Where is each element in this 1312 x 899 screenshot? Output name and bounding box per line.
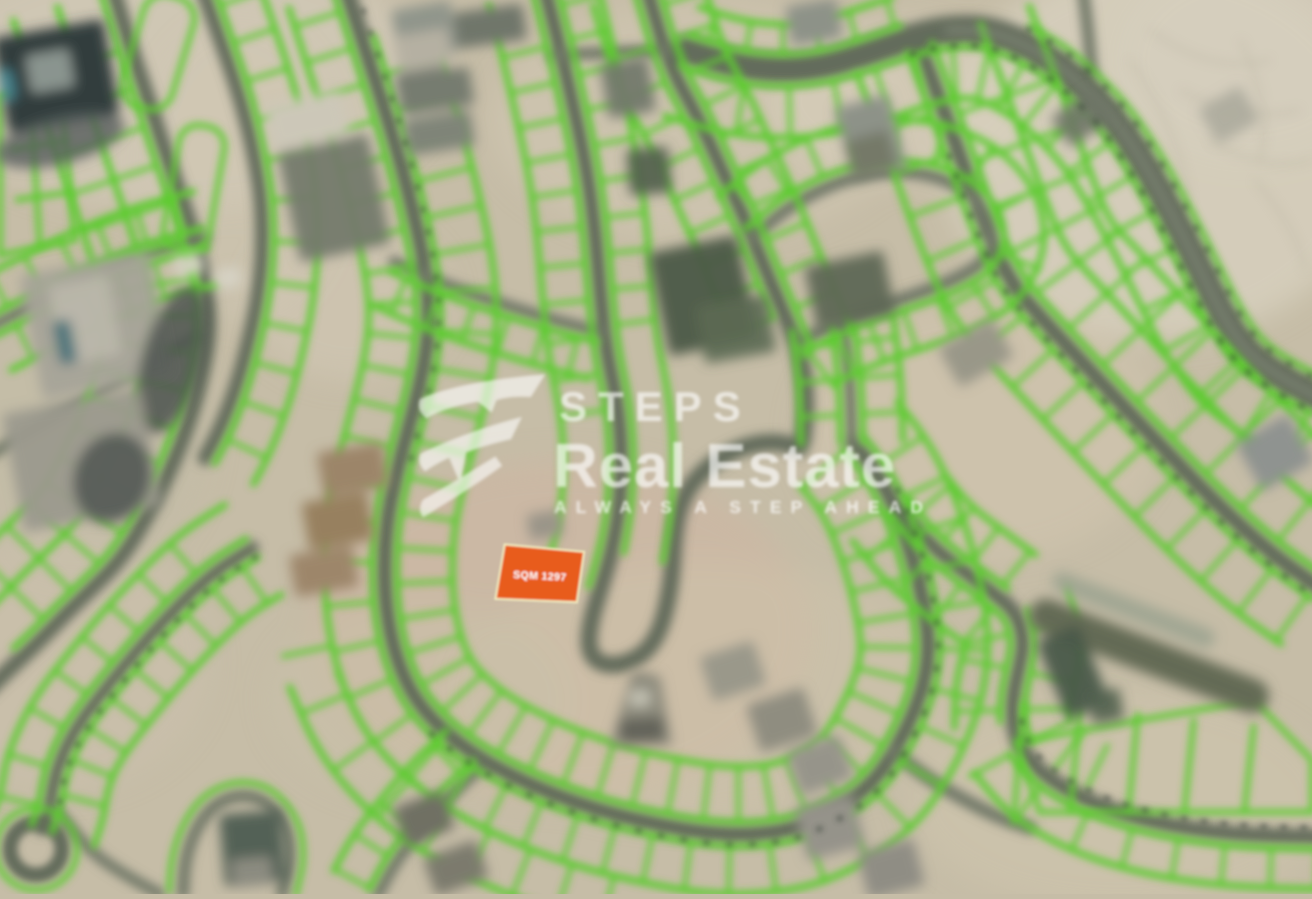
svg-text:STEPS: STEPS	[559, 383, 752, 430]
svg-text:ALWAYS A STEP AHEAD: ALWAYS A STEP AHEAD	[554, 497, 932, 517]
svg-text:Real Estate: Real Estate	[553, 432, 896, 501]
